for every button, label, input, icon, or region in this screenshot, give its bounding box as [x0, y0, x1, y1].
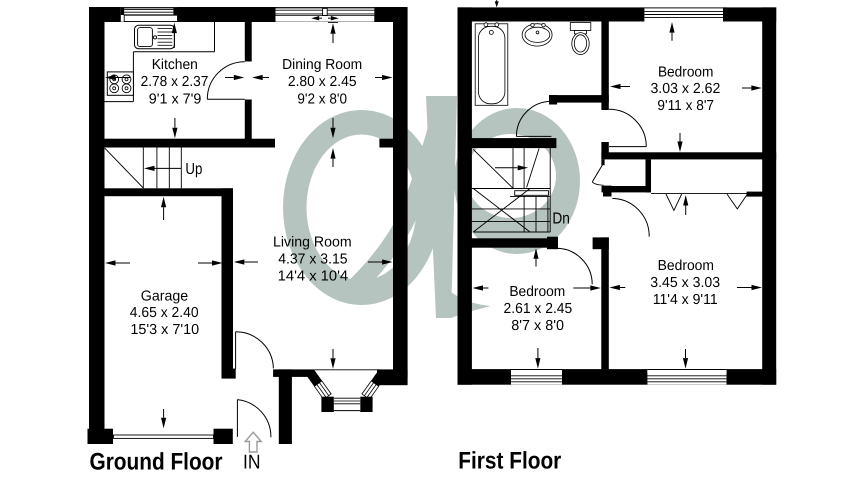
svg-text:Dn: Dn [552, 210, 570, 227]
svg-text:Living Room: Living Room [273, 235, 352, 251]
svg-text:4.65 x 2.40: 4.65 x 2.40 [130, 305, 199, 321]
svg-text:Bedroom: Bedroom [509, 284, 565, 300]
svg-text:Up: Up [185, 161, 202, 178]
svg-text:3.03 x 2.62: 3.03 x 2.62 [650, 81, 720, 97]
svg-text:2.61 x 2.45: 2.61 x 2.45 [504, 301, 573, 317]
svg-text:2.80 x 2.45: 2.80 x 2.45 [288, 74, 357, 90]
svg-text:Kitchen: Kitchen [152, 57, 198, 73]
svg-text:2.78 x 2.37: 2.78 x 2.37 [141, 74, 209, 90]
svg-text:Bedroom: Bedroom [658, 65, 714, 81]
svg-text:14'4 x 10'4: 14'4 x 10'4 [278, 268, 349, 284]
svg-text:3.45 x 3.03: 3.45 x 3.03 [650, 275, 720, 291]
svg-text:9'1 x 7'9: 9'1 x 7'9 [149, 92, 202, 108]
svg-text:9'2 x 8'0: 9'2 x 8'0 [297, 92, 347, 108]
svg-text:First Floor: First Floor [458, 448, 561, 475]
svg-text:11'4 x 9'11: 11'4 x 9'11 [653, 292, 718, 308]
svg-text:8'7 x 8'0: 8'7 x 8'0 [511, 318, 564, 334]
svg-text:15'3 x 7'10: 15'3 x 7'10 [130, 322, 199, 338]
svg-text:Ground Floor: Ground Floor [90, 449, 223, 476]
svg-text:4.37 x 3.15: 4.37 x 3.15 [278, 251, 347, 267]
svg-text:Bedroom: Bedroom [658, 258, 714, 274]
svg-text:IN: IN [243, 452, 261, 474]
svg-text:Garage: Garage [141, 289, 188, 305]
svg-text:9'11 x 8'7: 9'11 x 8'7 [657, 98, 714, 114]
svg-text:Dining Room: Dining Room [282, 57, 362, 73]
